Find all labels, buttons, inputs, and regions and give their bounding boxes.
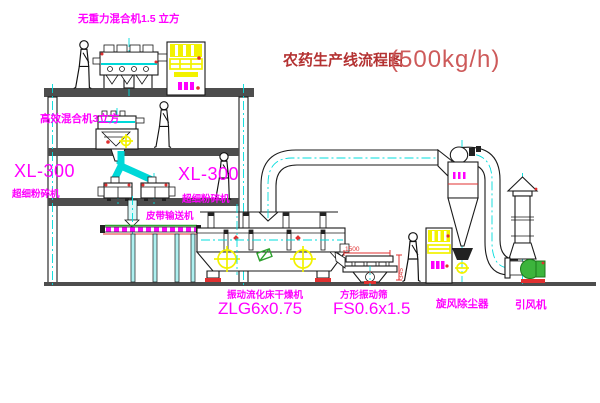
label-sieve-model: FS0.6x1.5 xyxy=(333,299,411,318)
label-mill-left-model: XL-300 xyxy=(14,161,75,181)
label-dryer-model: ZLG6x0.75 xyxy=(218,299,302,318)
label-cyclone: 旋风除尘器 xyxy=(435,297,489,310)
process-flow-drawing: 无重力混合机1.5 立方 农药生产线流程图 (500kg/h) 高效混合机3立方… xyxy=(0,0,600,403)
page-title: 农药生产线流程图 xyxy=(282,51,403,69)
cad-flowchart-canvas: 无重力混合机1.5 立方 农药生产线流程图 (500kg/h) 高效混合机3立方… xyxy=(0,0,600,403)
elevator-1-marks xyxy=(178,82,194,90)
page-title-capacity: (500kg/h) xyxy=(390,46,500,73)
label-gravity-mixer: 无重力混合机1.5 立方 xyxy=(77,12,180,25)
elevator-2-marks xyxy=(431,261,445,269)
ground-line xyxy=(44,282,596,286)
label-mill-center-model: XL-300 xyxy=(178,164,239,184)
label-draft-fan: 引风机 xyxy=(515,298,547,311)
dim-sieve-length: 1500 xyxy=(345,246,360,253)
bucket-elevator-1 xyxy=(167,42,205,95)
bucket-elevator-2 xyxy=(426,228,452,283)
label-belt-conveyor: 皮带输送机 xyxy=(145,210,194,222)
label-mill-left-name: 超细粉碎机 xyxy=(11,188,60,200)
label-mill-center-name: 超细粉碎机 xyxy=(181,193,230,205)
dim-sieve-height: 345 xyxy=(398,268,405,279)
cyclone-marks xyxy=(453,172,466,179)
label-high-eff-mixer: 高效混合机3立方 xyxy=(40,112,120,125)
